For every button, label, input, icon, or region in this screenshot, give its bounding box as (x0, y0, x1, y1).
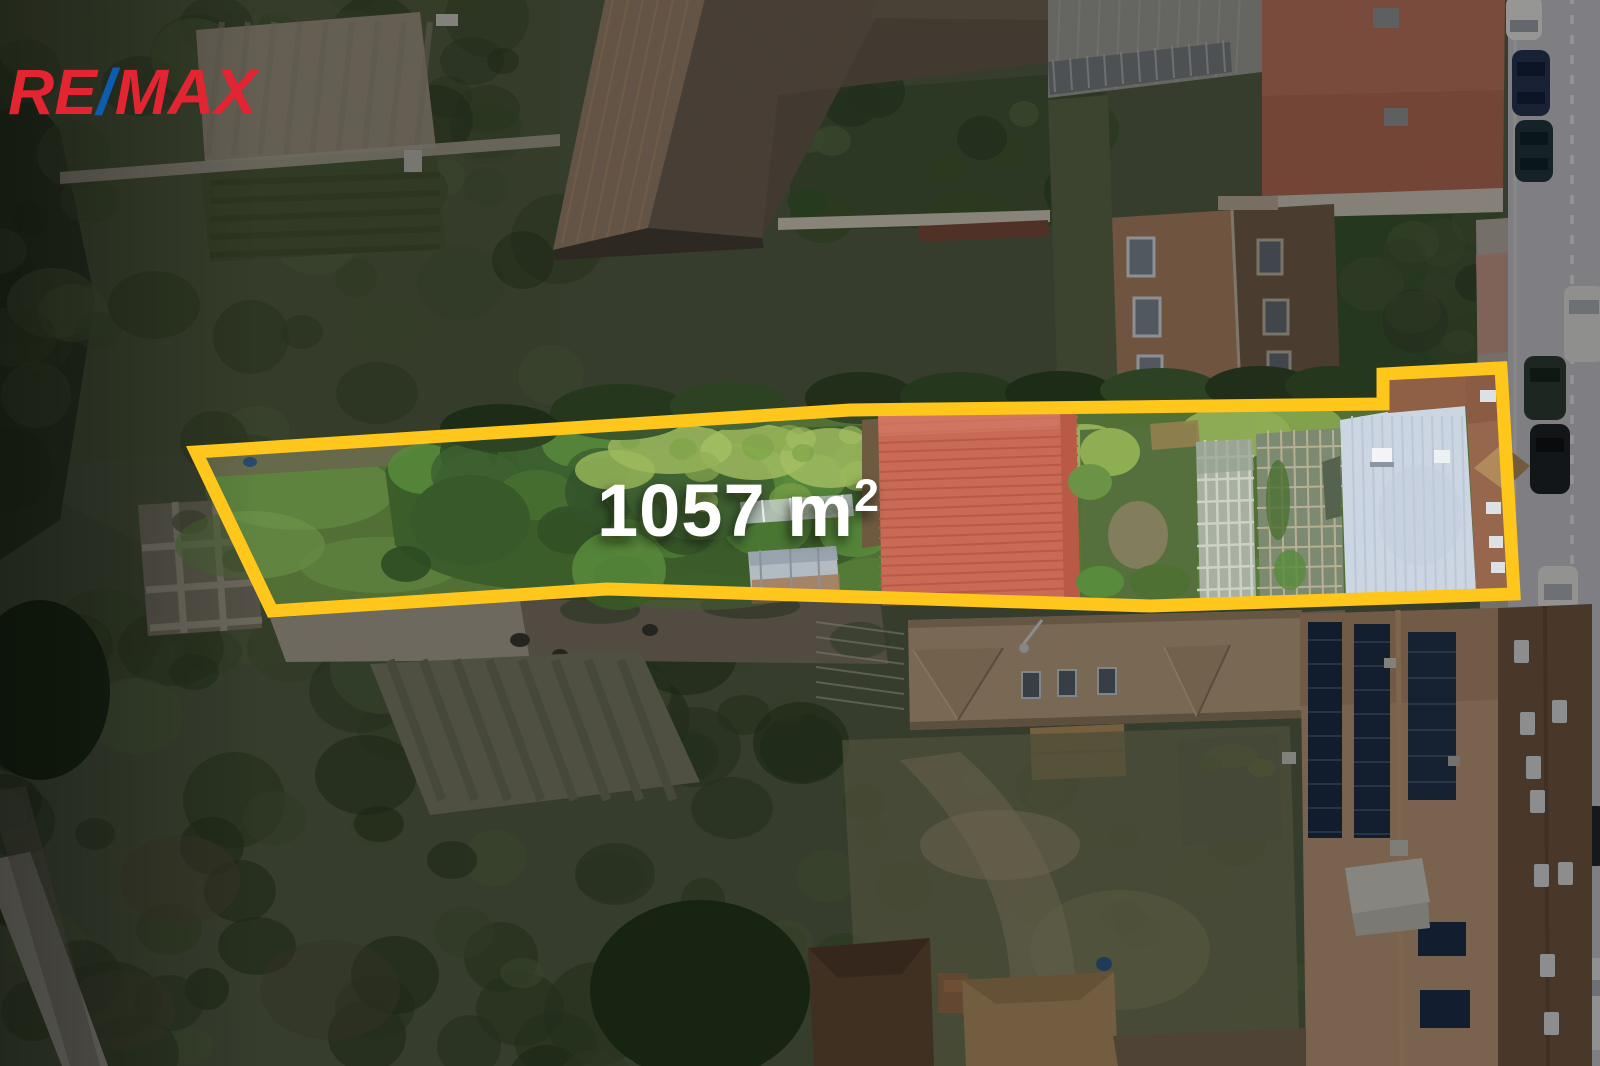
svg-text:RE/MAX: RE/MAX (8, 56, 260, 128)
svg-text:1057 m2: 1057 m2 (597, 469, 880, 552)
